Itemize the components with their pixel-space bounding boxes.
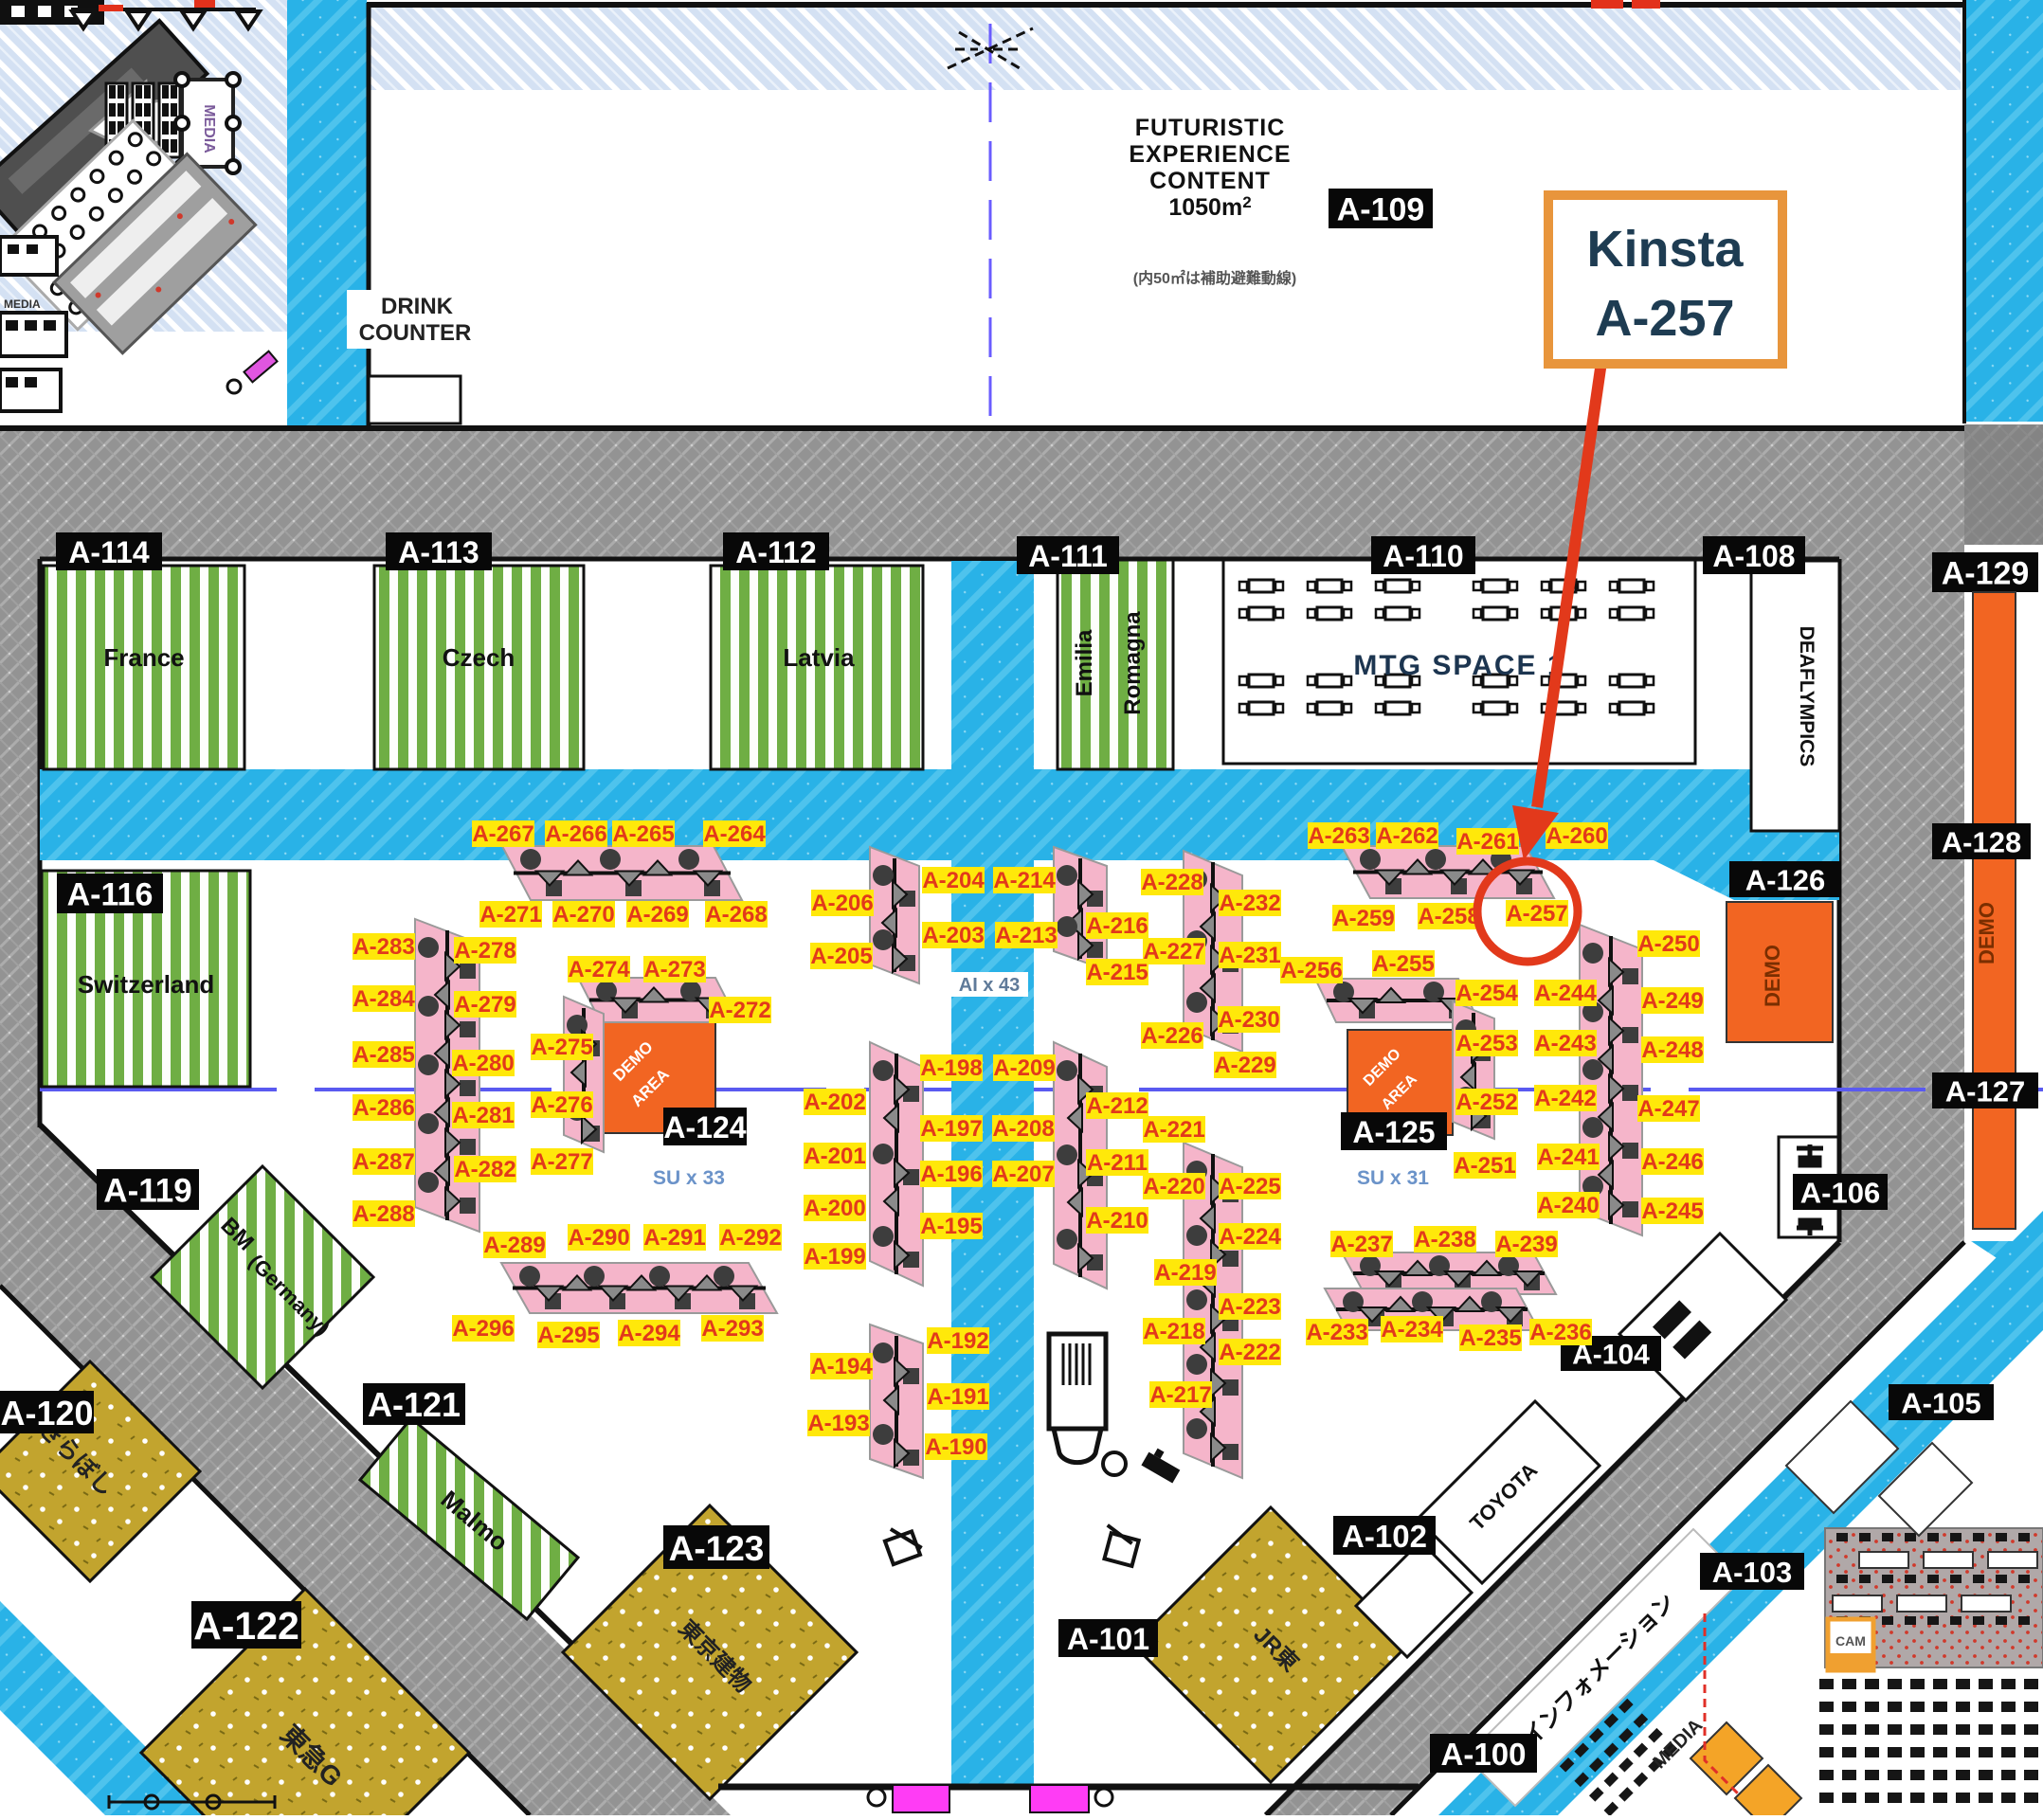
svg-text:A-258: A-258 bbox=[1418, 904, 1479, 929]
svg-text:A-119: A-119 bbox=[103, 1172, 191, 1209]
svg-text:A-291: A-291 bbox=[643, 1225, 705, 1251]
svg-text:A-116: A-116 bbox=[67, 877, 154, 913]
svg-text:EXPERIENCE: EXPERIENCE bbox=[1129, 141, 1291, 168]
svg-text:A-216: A-216 bbox=[1086, 913, 1148, 939]
svg-text:A-126: A-126 bbox=[1745, 863, 1825, 896]
svg-text:A-270: A-270 bbox=[552, 902, 614, 928]
svg-text:A-108: A-108 bbox=[1712, 539, 1795, 573]
svg-text:A-199: A-199 bbox=[804, 1244, 865, 1270]
svg-text:A-110: A-110 bbox=[1383, 539, 1463, 573]
svg-text:France: France bbox=[103, 643, 184, 672]
svg-text:A-239: A-239 bbox=[1495, 1232, 1557, 1257]
svg-text:A-254: A-254 bbox=[1455, 981, 1518, 1006]
svg-text:A-214: A-214 bbox=[993, 868, 1056, 893]
svg-text:A-246: A-246 bbox=[1641, 1149, 1703, 1175]
svg-text:(内50㎡は補助避難動線): (内50㎡は補助避難動線) bbox=[1133, 269, 1296, 287]
svg-text:A-124: A-124 bbox=[663, 1110, 746, 1144]
svg-text:A-190: A-190 bbox=[925, 1434, 986, 1460]
svg-text:A-236: A-236 bbox=[1529, 1320, 1591, 1345]
svg-text:A-204: A-204 bbox=[922, 868, 985, 893]
svg-text:A-122: A-122 bbox=[193, 1604, 299, 1648]
svg-text:A-286: A-286 bbox=[353, 1095, 414, 1121]
svg-text:A-278: A-278 bbox=[454, 938, 515, 964]
svg-text:DEMO: DEMO bbox=[1761, 945, 1784, 1007]
svg-text:A-232: A-232 bbox=[1219, 891, 1280, 916]
svg-text:A-272: A-272 bbox=[709, 998, 770, 1023]
svg-text:A-211: A-211 bbox=[1087, 1150, 1148, 1176]
svg-text:A-109: A-109 bbox=[1337, 192, 1425, 228]
svg-text:A-201: A-201 bbox=[804, 1144, 865, 1169]
svg-text:A-244: A-244 bbox=[1534, 981, 1597, 1006]
svg-text:A-273: A-273 bbox=[643, 957, 705, 982]
svg-text:A-275: A-275 bbox=[531, 1035, 592, 1060]
svg-text:SU x 33: SU x 33 bbox=[653, 1167, 725, 1189]
svg-text:A-249: A-249 bbox=[1641, 988, 1703, 1014]
svg-text:A-221: A-221 bbox=[1143, 1117, 1204, 1143]
svg-text:A-111: A-111 bbox=[1028, 539, 1108, 573]
svg-text:Emilia: Emilia bbox=[1072, 629, 1097, 696]
svg-text:A-210: A-210 bbox=[1086, 1208, 1148, 1234]
svg-text:COUNTER: COUNTER bbox=[359, 320, 472, 346]
svg-text:A-100: A-100 bbox=[1441, 1737, 1527, 1772]
svg-text:A-196: A-196 bbox=[920, 1162, 982, 1187]
svg-text:A-226: A-226 bbox=[1141, 1023, 1202, 1049]
svg-text:A-234: A-234 bbox=[1381, 1317, 1443, 1342]
svg-text:FUTURISTIC: FUTURISTIC bbox=[1135, 115, 1286, 141]
svg-text:Switzerland: Switzerland bbox=[78, 970, 214, 999]
svg-text:A-257: A-257 bbox=[1595, 290, 1734, 347]
svg-text:A-255: A-255 bbox=[1372, 951, 1434, 977]
svg-text:A-253: A-253 bbox=[1455, 1031, 1517, 1056]
svg-text:A-217: A-217 bbox=[1149, 1382, 1211, 1408]
svg-text:A-268: A-268 bbox=[705, 902, 767, 928]
svg-text:Latvia: Latvia bbox=[783, 643, 855, 672]
svg-text:A-269: A-269 bbox=[626, 902, 688, 928]
svg-text:A-227: A-227 bbox=[1143, 939, 1204, 964]
svg-text:A-263: A-263 bbox=[1308, 823, 1369, 849]
svg-text:A-262: A-262 bbox=[1376, 823, 1437, 849]
svg-text:A-194: A-194 bbox=[810, 1354, 873, 1379]
svg-text:A-242: A-242 bbox=[1534, 1086, 1596, 1111]
svg-text:A-102: A-102 bbox=[1342, 1519, 1427, 1554]
svg-text:A-295: A-295 bbox=[537, 1323, 599, 1348]
svg-text:A-105: A-105 bbox=[1901, 1386, 1980, 1419]
svg-text:A-287: A-287 bbox=[353, 1149, 414, 1175]
svg-text:A-205: A-205 bbox=[810, 944, 872, 969]
svg-text:CAM: CAM bbox=[1835, 1633, 1866, 1649]
svg-text:A-293: A-293 bbox=[701, 1316, 763, 1342]
svg-text:MEDIA: MEDIA bbox=[4, 297, 41, 311]
svg-text:A-193: A-193 bbox=[807, 1411, 869, 1436]
svg-text:Czech: Czech bbox=[443, 643, 515, 672]
svg-text:A-296: A-296 bbox=[452, 1316, 514, 1342]
svg-text:A-101: A-101 bbox=[1067, 1622, 1149, 1656]
svg-text:AI x 43: AI x 43 bbox=[959, 975, 1020, 996]
svg-text:A-220: A-220 bbox=[1143, 1174, 1204, 1199]
svg-text:A-106: A-106 bbox=[1800, 1176, 1880, 1209]
svg-text:A-120: A-120 bbox=[0, 1394, 93, 1433]
svg-text:A-235: A-235 bbox=[1459, 1325, 1521, 1351]
svg-text:A-257: A-257 bbox=[1506, 901, 1567, 927]
svg-text:A-288: A-288 bbox=[353, 1201, 414, 1227]
svg-text:A-251: A-251 bbox=[1454, 1153, 1515, 1179]
svg-text:DEAFLYMPICS: DEAFLYMPICS bbox=[1796, 626, 1817, 767]
svg-text:A-125: A-125 bbox=[1352, 1115, 1435, 1149]
svg-text:A-229: A-229 bbox=[1214, 1053, 1275, 1078]
svg-text:A-281: A-281 bbox=[452, 1103, 514, 1128]
svg-text:A-247: A-247 bbox=[1637, 1096, 1699, 1122]
svg-text:A-228: A-228 bbox=[1141, 870, 1202, 895]
svg-text:A-289: A-289 bbox=[483, 1233, 545, 1258]
svg-text:A-197: A-197 bbox=[920, 1116, 982, 1142]
svg-text:A-219: A-219 bbox=[1154, 1260, 1216, 1286]
svg-text:A-230: A-230 bbox=[1218, 1007, 1279, 1033]
svg-text:A-113: A-113 bbox=[398, 535, 479, 569]
svg-text:A-114: A-114 bbox=[68, 535, 150, 569]
svg-text:1050m2: 1050m2 bbox=[1168, 193, 1251, 221]
svg-text:A-282: A-282 bbox=[454, 1157, 515, 1182]
svg-text:A-260: A-260 bbox=[1546, 823, 1607, 849]
svg-text:A-240: A-240 bbox=[1537, 1193, 1599, 1218]
svg-text:Kinsta: Kinsta bbox=[1586, 221, 1744, 278]
svg-text:A-267: A-267 bbox=[472, 821, 533, 847]
svg-text:A-279: A-279 bbox=[454, 992, 515, 1018]
svg-text:A-265: A-265 bbox=[612, 821, 674, 847]
svg-text:SU x 31: SU x 31 bbox=[1357, 1167, 1429, 1189]
svg-text:A-250: A-250 bbox=[1637, 931, 1699, 957]
svg-text:A-274: A-274 bbox=[568, 957, 630, 982]
svg-text:A-127: A-127 bbox=[1945, 1074, 2025, 1108]
svg-text:A-261: A-261 bbox=[1456, 829, 1518, 855]
svg-text:A-237: A-237 bbox=[1330, 1232, 1392, 1257]
svg-text:DEMO: DEMO bbox=[1975, 902, 1998, 964]
svg-text:A-284: A-284 bbox=[353, 986, 415, 1012]
svg-text:A-285: A-285 bbox=[353, 1042, 414, 1068]
svg-text:A-266: A-266 bbox=[545, 821, 606, 847]
svg-text:A-280: A-280 bbox=[452, 1051, 514, 1076]
svg-text:A-241: A-241 bbox=[1537, 1144, 1599, 1170]
svg-text:A-256: A-256 bbox=[1280, 958, 1342, 983]
svg-text:CONTENT: CONTENT bbox=[1149, 168, 1271, 194]
svg-text:A-121: A-121 bbox=[368, 1385, 461, 1424]
svg-text:Romagna: Romagna bbox=[1120, 611, 1146, 715]
svg-text:A-209: A-209 bbox=[993, 1055, 1055, 1081]
svg-text:A-206: A-206 bbox=[811, 891, 873, 916]
svg-text:A-225: A-225 bbox=[1219, 1174, 1280, 1199]
svg-text:A-128: A-128 bbox=[1942, 825, 2021, 858]
svg-text:A-112: A-112 bbox=[735, 535, 816, 569]
svg-text:A-271: A-271 bbox=[479, 902, 541, 928]
svg-text:A-222: A-222 bbox=[1219, 1340, 1280, 1365]
svg-text:A-203: A-203 bbox=[922, 923, 984, 948]
svg-text:A-294: A-294 bbox=[618, 1321, 680, 1346]
svg-text:A-207: A-207 bbox=[992, 1162, 1054, 1187]
svg-text:A-243: A-243 bbox=[1534, 1031, 1596, 1056]
svg-text:A-283: A-283 bbox=[353, 934, 414, 960]
svg-text:A-202: A-202 bbox=[804, 1090, 865, 1115]
svg-text:A-191: A-191 bbox=[927, 1384, 988, 1410]
svg-text:A-195: A-195 bbox=[920, 1214, 982, 1239]
svg-text:A-192: A-192 bbox=[927, 1328, 988, 1354]
svg-text:A-224: A-224 bbox=[1219, 1224, 1281, 1250]
svg-text:A-103: A-103 bbox=[1712, 1556, 1792, 1589]
svg-text:A-223: A-223 bbox=[1219, 1294, 1280, 1320]
svg-text:A-277: A-277 bbox=[531, 1149, 592, 1175]
svg-text:A-292: A-292 bbox=[719, 1225, 781, 1251]
svg-text:A-129: A-129 bbox=[1942, 556, 2030, 592]
svg-text:A-123: A-123 bbox=[669, 1529, 765, 1568]
svg-text:A-290: A-290 bbox=[568, 1225, 629, 1251]
svg-text:A-215: A-215 bbox=[1086, 960, 1148, 985]
svg-text:A-208: A-208 bbox=[992, 1116, 1054, 1142]
svg-text:A-212: A-212 bbox=[1086, 1093, 1148, 1119]
svg-text:A-238: A-238 bbox=[1414, 1227, 1475, 1252]
svg-text:A-264: A-264 bbox=[703, 821, 766, 847]
svg-text:A-245: A-245 bbox=[1641, 1198, 1703, 1224]
svg-text:MEDIA: MEDIA bbox=[201, 104, 217, 153]
svg-text:A-218: A-218 bbox=[1143, 1319, 1204, 1344]
svg-text:DRINK: DRINK bbox=[381, 294, 454, 319]
svg-text:MTG SPACE 1: MTG SPACE 1 bbox=[1353, 650, 1564, 681]
svg-text:A-200: A-200 bbox=[804, 1196, 865, 1221]
svg-text:A-248: A-248 bbox=[1641, 1037, 1703, 1063]
svg-text:A-233: A-233 bbox=[1306, 1320, 1367, 1345]
svg-text:A-259: A-259 bbox=[1332, 906, 1394, 931]
svg-text:A-252: A-252 bbox=[1455, 1090, 1517, 1115]
svg-text:A-198: A-198 bbox=[920, 1055, 982, 1081]
svg-text:A-231: A-231 bbox=[1219, 943, 1280, 968]
svg-text:A-276: A-276 bbox=[531, 1092, 592, 1118]
svg-text:A-213: A-213 bbox=[995, 923, 1057, 948]
